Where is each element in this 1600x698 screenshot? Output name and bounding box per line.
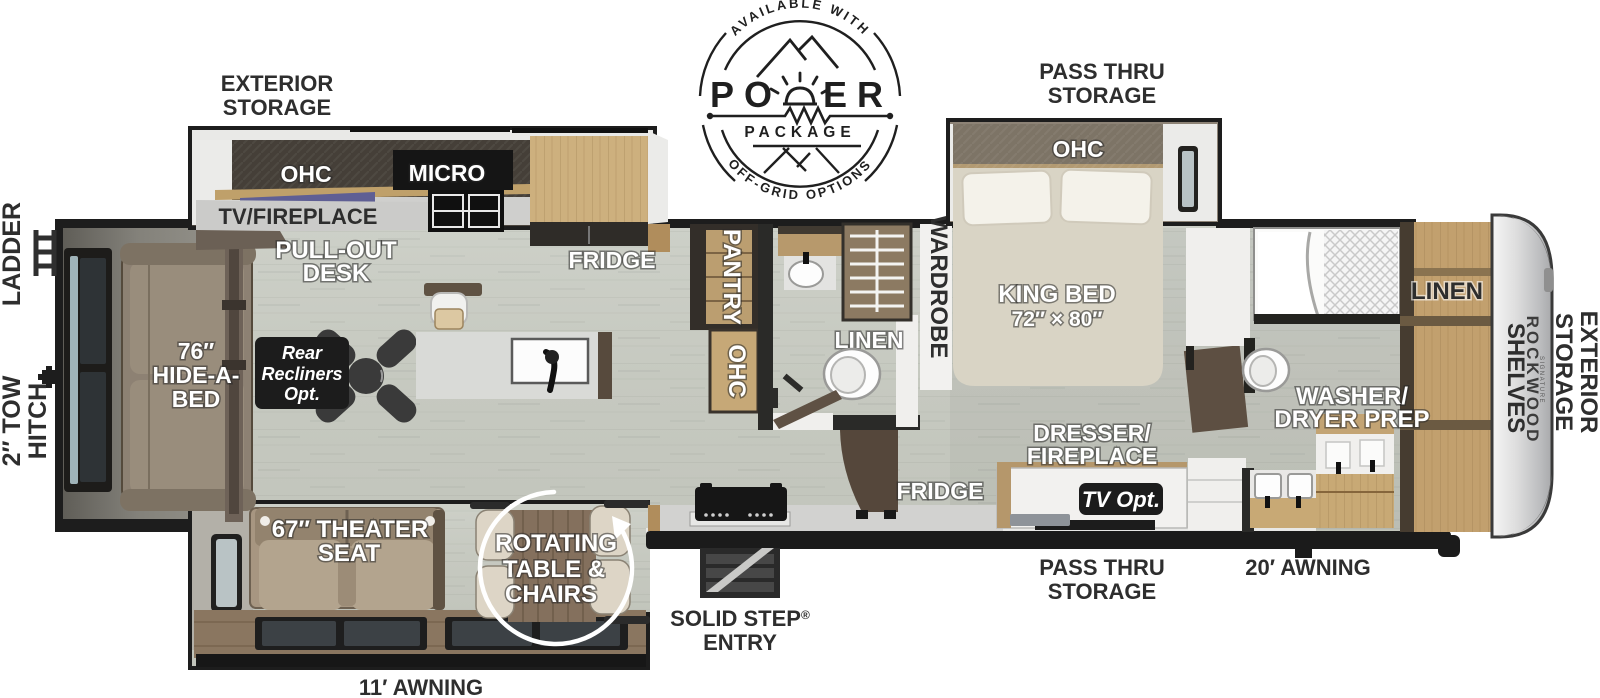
svg-text:BED: BED	[172, 386, 221, 412]
svg-text:OHC: OHC	[1052, 136, 1103, 162]
svg-text:EXTERIOR: EXTERIOR	[221, 71, 334, 96]
svg-text:CHAIRS: CHAIRS	[505, 581, 597, 608]
svg-text:76″: 76″	[178, 338, 215, 364]
svg-text:SEAT: SEAT	[318, 540, 381, 567]
svg-text:STORAGE: STORAGE	[1550, 313, 1577, 431]
svg-text:FRIDGE: FRIDGE	[569, 247, 656, 273]
svg-text:DESK: DESK	[303, 260, 370, 287]
svg-text:ENTRY: ENTRY	[703, 630, 777, 655]
svg-text:SOLID STEP®: SOLID STEP®	[670, 606, 810, 631]
svg-text:KING BED: KING BED	[998, 281, 1115, 308]
svg-text:TV/FIREPLACE: TV/FIREPLACE	[219, 204, 378, 229]
svg-text:TABLE &: TABLE &	[503, 556, 605, 583]
svg-text:2″ TOW: 2″ TOW	[0, 375, 26, 466]
svg-text:Opt.: Opt.	[284, 384, 320, 404]
svg-text:ROTATING: ROTATING	[495, 530, 617, 557]
svg-text:OHC: OHC	[280, 161, 331, 187]
svg-text:HITCH: HITCH	[24, 383, 52, 459]
svg-text:20′ AWNING: 20′ AWNING	[1245, 555, 1370, 580]
svg-text:STORAGE: STORAGE	[223, 95, 331, 120]
svg-text:MICRO: MICRO	[409, 160, 486, 186]
svg-text:Recliners: Recliners	[261, 364, 342, 384]
svg-text:TV Opt.: TV Opt.	[1082, 487, 1160, 512]
svg-text:DRYER PREP: DRYER PREP	[1274, 406, 1429, 433]
svg-text:PANTRY: PANTRY	[718, 229, 745, 325]
svg-text:LADDER: LADDER	[0, 202, 26, 306]
svg-text:72″ × 80″: 72″ × 80″	[1012, 308, 1103, 331]
svg-text:EXTERIOR: EXTERIOR	[1575, 311, 1600, 434]
svg-text:LINEN: LINEN	[1411, 278, 1483, 305]
svg-text:HIDE-A-: HIDE-A-	[153, 362, 240, 388]
svg-text:FRIDGE: FRIDGE	[897, 478, 984, 504]
svg-text:Rear: Rear	[282, 343, 323, 363]
svg-text:11′ AWNING: 11′ AWNING	[359, 675, 483, 698]
svg-text:STORAGE: STORAGE	[1048, 579, 1156, 604]
svg-text:ER: ER	[823, 74, 893, 115]
svg-text:PASS THRU: PASS THRU	[1039, 59, 1165, 84]
svg-text:FIREPLACE: FIREPLACE	[1027, 443, 1157, 469]
svg-text:PACKAGE: PACKAGE	[744, 124, 855, 141]
svg-text:STORAGE: STORAGE	[1048, 83, 1156, 108]
svg-text:SIGNATURE: SIGNATURE	[1538, 356, 1544, 404]
svg-text:OHC: OHC	[723, 344, 750, 397]
svg-text:PASS THRU: PASS THRU	[1039, 555, 1165, 580]
svg-text:PO: PO	[710, 74, 782, 115]
svg-text:67″ THEATER: 67″ THEATER	[272, 516, 428, 543]
svg-text:WARDROBE: WARDROBE	[925, 216, 952, 359]
